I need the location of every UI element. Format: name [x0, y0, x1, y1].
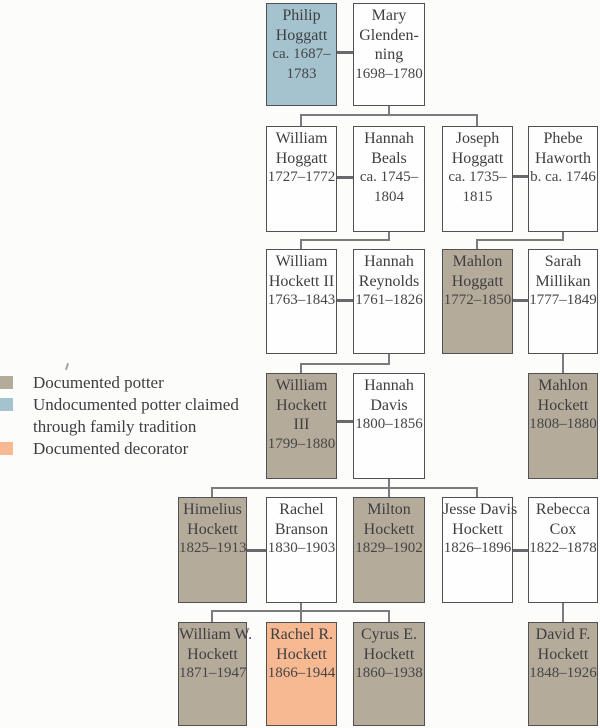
- legend-label: Undocumented potter claimed through fami…: [33, 394, 239, 438]
- person-name: David F. Hockett: [529, 625, 597, 664]
- legend-item-undocumented-potter: Undocumented potter claimed through fami…: [0, 394, 260, 438]
- person-mahlon-hockett: Mahlon Hockett 1808–1880: [528, 373, 598, 479]
- family-tree-diagram: Philip Hoggatt ca. 1687– 1783 Mary Glend…: [0, 0, 600, 728]
- legend-swatch-documented-decorator: [0, 442, 13, 455]
- person-name: Philip Hoggatt: [267, 6, 336, 45]
- person-dates: 1860–1938: [354, 664, 424, 684]
- person-milton-hockett: Milton Hockett 1829–1902: [353, 497, 425, 603]
- descent-line: [476, 239, 564, 241]
- person-mahlon-hoggatt: Mahlon Hoggatt 1772–1850: [442, 249, 513, 354]
- person-name: Rebecca Cox: [529, 500, 597, 539]
- person-name: William Hockett II: [267, 252, 336, 291]
- person-hannah-reynolds: Hannah Reynolds 1761–1826: [353, 249, 425, 354]
- legend-swatch-documented-potter: [0, 376, 13, 389]
- descent-line: [388, 487, 390, 497]
- person-rachel-r-hockett: Rachel R. Hockett 1866–1944: [266, 622, 337, 726]
- person-rachel-branson: Rachel Branson 1830–1903: [266, 497, 337, 603]
- person-dates: 1772–1850: [443, 291, 512, 311]
- marriage-line-joseph-phebe: [513, 175, 528, 178]
- descent-line: [300, 114, 478, 116]
- person-dates: 1826–1896: [443, 539, 512, 559]
- legend: Documented potter Undocumented potter cl…: [0, 372, 260, 460]
- person-name: William Hockett III: [267, 376, 336, 435]
- person-hannah-davis: Hannah Davis 1800–1856: [353, 373, 425, 479]
- marriage-line-mahlon-sarah: [513, 299, 528, 302]
- descent-line: [300, 239, 390, 241]
- person-name: Mahlon Hockett: [529, 376, 597, 415]
- person-dates: 1829–1902: [354, 539, 424, 559]
- legend-item-documented-potter: Documented potter: [0, 372, 260, 394]
- person-name: Himelius Hockett: [179, 500, 246, 539]
- descent-line: [300, 363, 390, 365]
- person-name: William Hoggatt: [267, 129, 336, 168]
- person-william-hockett-ii: William Hockett II 1763–1843: [266, 249, 337, 354]
- person-name: Jesse Davis Hockett: [443, 500, 512, 539]
- descent-line: [211, 487, 213, 497]
- person-cyrus-e-hockett: Cyrus E. Hockett 1860–1938: [353, 622, 425, 726]
- descent-line: [300, 114, 302, 126]
- person-william-w-hockett: William W. Hockett 1871–1947: [178, 622, 247, 726]
- descent-line: [300, 363, 302, 373]
- person-william-hockett-iii: William Hockett III 1799–1880: [266, 373, 337, 479]
- person-name: William W. Hockett: [179, 625, 246, 664]
- person-name: Rachel R. Hockett: [267, 625, 336, 664]
- person-william-hoggatt: William Hoggatt 1727–1772: [266, 126, 337, 232]
- marriage-line-philip-mary: [337, 51, 353, 54]
- person-dates: b. ca. 1746: [529, 168, 597, 188]
- person-dates: 1698–1780: [354, 65, 424, 85]
- person-dates: 1830–1903: [267, 539, 336, 559]
- person-dates: 1800–1856: [354, 415, 424, 435]
- person-name: Joseph Hoggatt: [443, 129, 512, 168]
- person-dates: 1822–1878: [529, 539, 597, 559]
- marriage-line-williamii-hannah-reynolds: [337, 299, 353, 302]
- marriage-line-williamiii-hannah-davis: [337, 420, 353, 423]
- descent-line: [476, 114, 478, 126]
- descent-line: [388, 610, 390, 622]
- person-dates: 1871–1947: [179, 664, 246, 684]
- person-philip-hoggatt: Philip Hoggatt ca. 1687– 1783: [266, 3, 337, 106]
- person-dates: 1848–1926: [529, 664, 597, 684]
- person-dates: ca. 1735– 1815: [443, 168, 512, 207]
- person-dates: 1761–1826: [354, 291, 424, 311]
- legend-swatch-undocumented-potter: [0, 398, 13, 411]
- descent-line: [476, 487, 478, 497]
- person-name: Hannah Davis: [354, 376, 424, 415]
- legend-item-documented-decorator: Documented decorator: [0, 438, 260, 460]
- person-hannah-beals: Hannah Beals ca. 1745– 1804: [353, 126, 425, 232]
- descent-line: [300, 239, 302, 249]
- person-name: Mahlon Hoggatt: [443, 252, 512, 291]
- descent-line: [476, 239, 478, 249]
- descent-line: [562, 603, 564, 622]
- person-dates: 1799–1880: [267, 435, 336, 455]
- person-mary-glendenning: Mary Glenden- ning 1698–1780: [353, 3, 425, 106]
- person-dates: 1825–1913: [179, 539, 246, 559]
- descent-line: [211, 610, 213, 622]
- person-name: Rachel Branson: [267, 500, 336, 539]
- person-jesse-davis-hockett: Jesse Davis Hockett 1826–1896: [442, 497, 513, 603]
- descent-line: [562, 354, 564, 373]
- person-name: Mary Glenden- ning: [354, 6, 424, 65]
- descent-line: [211, 487, 478, 489]
- person-sarah-millikan: Sarah Millikan 1777–1849: [528, 249, 598, 354]
- person-dates: 1763–1843: [267, 291, 336, 311]
- person-name: Milton Hockett: [354, 500, 424, 539]
- person-dates: 1808–1880: [529, 415, 597, 435]
- person-name: Hannah Reynolds: [354, 252, 424, 291]
- person-dates: 1866–1944: [267, 664, 336, 684]
- person-david-f-hockett: David F. Hockett 1848–1926: [528, 622, 598, 726]
- person-dates: ca. 1745– 1804: [354, 168, 424, 207]
- person-name: Hannah Beals: [354, 129, 424, 168]
- stray-scan-mark: [65, 363, 69, 370]
- person-dates: 1777–1849: [529, 291, 597, 311]
- person-dates: 1727–1772: [267, 168, 336, 188]
- person-phebe-haworth: Phebe Haworth b. ca. 1746: [528, 126, 598, 232]
- person-name: Sarah Millikan: [529, 252, 597, 291]
- descent-line: [300, 610, 302, 622]
- marriage-line-william-hannah-beals: [337, 176, 353, 179]
- legend-label: Documented decorator: [33, 438, 188, 460]
- marriage-line-himelius-rachel: [247, 549, 266, 552]
- marriage-line-jesse-rebecca: [513, 549, 528, 552]
- person-name: Phebe Haworth: [529, 129, 597, 168]
- person-rebecca-cox: Rebecca Cox 1822–1878: [528, 497, 598, 603]
- person-himelius-hockett: Himelius Hockett 1825–1913: [178, 497, 247, 603]
- person-dates: ca. 1687– 1783: [267, 45, 336, 84]
- legend-label: Documented potter: [33, 372, 164, 394]
- person-joseph-hoggatt: Joseph Hoggatt ca. 1735– 1815: [442, 126, 513, 232]
- person-name: Cyrus E. Hockett: [354, 625, 424, 664]
